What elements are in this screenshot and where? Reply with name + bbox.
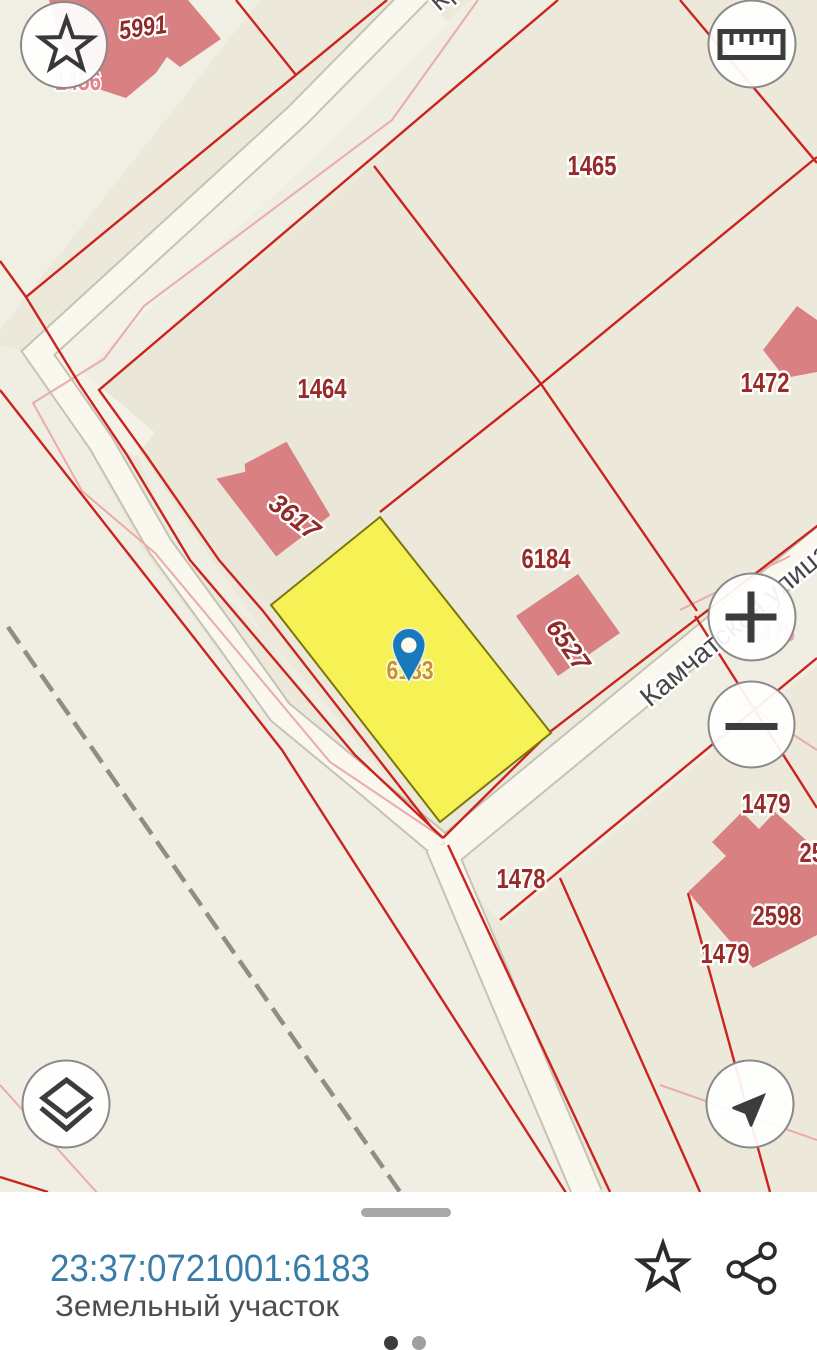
svg-text:1464: 1464: [298, 373, 347, 404]
svg-text:23:37:0721001:6183: 23:37:0721001:6183: [50, 1248, 370, 1290]
svg-text:6184: 6184: [522, 543, 571, 574]
svg-text:1465: 1465: [568, 150, 617, 181]
svg-text:2598: 2598: [753, 900, 802, 931]
svg-text:2598: 2598: [800, 837, 817, 868]
svg-text:1472: 1472: [741, 367, 790, 398]
svg-text:Земельный участок: Земельный участок: [55, 1290, 340, 1323]
svg-text:1479: 1479: [701, 938, 750, 969]
svg-text:1479: 1479: [742, 788, 791, 819]
svg-text:1478: 1478: [497, 863, 546, 894]
